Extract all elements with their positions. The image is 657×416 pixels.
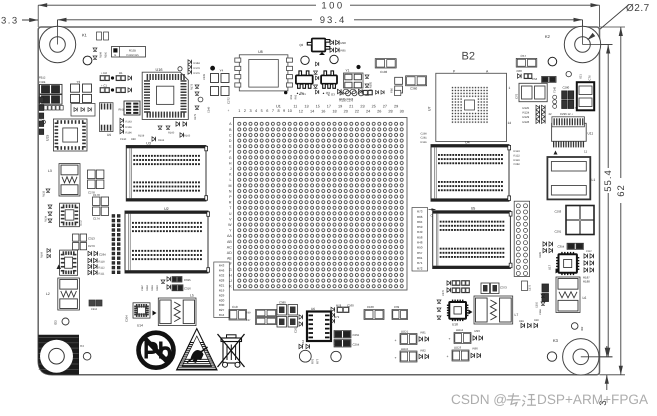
svg-text:R188: R188 bbox=[583, 280, 590, 284]
svg-text:R123: R123 bbox=[514, 150, 521, 153]
svg-text:+: + bbox=[447, 355, 449, 359]
svg-text:C313: C313 bbox=[88, 237, 95, 241]
svg-text:R109: R109 bbox=[41, 251, 44, 258]
svg-text:29: 29 bbox=[394, 104, 398, 108]
svg-text:R44: R44 bbox=[219, 313, 225, 317]
svg-text:R166: R166 bbox=[126, 126, 133, 129]
svg-text:C76: C76 bbox=[588, 75, 592, 81]
svg-text:U15: U15 bbox=[46, 135, 50, 141]
svg-text:R126: R126 bbox=[523, 120, 530, 124]
svg-text:C339: C339 bbox=[203, 73, 206, 80]
svg-text:3: 3 bbox=[249, 109, 251, 113]
svg-text:R133: R133 bbox=[43, 190, 46, 197]
svg-text:R118: R118 bbox=[99, 261, 106, 264]
svg-text:U5: U5 bbox=[471, 207, 476, 211]
svg-text:R48: R48 bbox=[417, 241, 423, 245]
svg-text:12: 12 bbox=[299, 110, 303, 114]
svg-text:R200: R200 bbox=[105, 51, 108, 58]
svg-text:C293: C293 bbox=[555, 210, 562, 214]
svg-text:C360: C360 bbox=[410, 87, 418, 91]
svg-text:L5: L5 bbox=[190, 294, 194, 298]
svg-text:C282: C282 bbox=[514, 163, 521, 166]
svg-text:N: N bbox=[229, 189, 232, 193]
svg-text:DSP+ARM+FPGA: DSP+ARM+FPGA bbox=[537, 392, 649, 407]
svg-text:17: 17 bbox=[327, 104, 331, 108]
svg-text:R: R bbox=[229, 201, 232, 205]
svg-text:H4: H4 bbox=[80, 344, 84, 348]
svg-text:R46: R46 bbox=[219, 269, 225, 273]
svg-text:L7: L7 bbox=[515, 313, 519, 317]
svg-text:R92: R92 bbox=[295, 94, 298, 99]
svg-text:K2: K2 bbox=[545, 34, 551, 39]
svg-text:B2: B2 bbox=[462, 51, 475, 63]
svg-text:R155: R155 bbox=[129, 48, 137, 52]
svg-text:U8: U8 bbox=[258, 50, 263, 54]
svg-text:H: H bbox=[229, 161, 232, 165]
svg-text:2: 2 bbox=[244, 109, 246, 113]
svg-text:ID1: ID1 bbox=[579, 74, 583, 79]
svg-text:C380: C380 bbox=[279, 301, 286, 305]
svg-text:R165: R165 bbox=[184, 135, 191, 138]
svg-text:R72: R72 bbox=[417, 266, 423, 270]
svg-text:+: + bbox=[228, 109, 230, 113]
svg-text:C291: C291 bbox=[555, 230, 562, 234]
svg-text:R92: R92 bbox=[421, 349, 427, 353]
svg-text:L3: L3 bbox=[48, 169, 52, 173]
svg-text:U14: U14 bbox=[137, 324, 143, 328]
svg-text:20: 20 bbox=[344, 110, 348, 114]
svg-text:24: 24 bbox=[366, 110, 370, 114]
svg-text:R95: R95 bbox=[341, 49, 347, 53]
svg-text:M: M bbox=[229, 184, 232, 188]
svg-text:18: 18 bbox=[332, 110, 336, 114]
svg-text:+ C1: + C1 bbox=[101, 84, 107, 88]
svg-text:22: 22 bbox=[355, 110, 359, 114]
svg-text:R124: R124 bbox=[523, 111, 530, 115]
svg-text:8: 8 bbox=[277, 109, 279, 113]
svg-text:19: 19 bbox=[338, 104, 342, 108]
svg-text:C57: C57 bbox=[521, 54, 527, 58]
svg-text:C324: C324 bbox=[39, 81, 46, 84]
svg-text:R71: R71 bbox=[417, 261, 423, 265]
svg-text:23: 23 bbox=[360, 104, 364, 108]
svg-text:C340: C340 bbox=[208, 106, 211, 113]
svg-text:C39: C39 bbox=[394, 305, 400, 309]
svg-text:R162: R162 bbox=[158, 139, 165, 142]
svg-text:U3: U3 bbox=[146, 141, 151, 145]
svg-text:R105 C276: R105 C276 bbox=[340, 100, 354, 103]
svg-text:AC: AC bbox=[227, 245, 232, 249]
svg-text:R98: R98 bbox=[341, 41, 347, 45]
svg-text:10: 10 bbox=[288, 109, 292, 113]
svg-text:D: D bbox=[229, 139, 232, 143]
svg-text:ID3: ID3 bbox=[54, 320, 58, 325]
svg-text:R19: R19 bbox=[219, 288, 225, 292]
svg-text:62: 62 bbox=[616, 184, 627, 197]
svg-text:C100: C100 bbox=[367, 305, 374, 309]
svg-text:F89: F89 bbox=[246, 312, 251, 315]
svg-text:C315: C315 bbox=[184, 278, 191, 282]
svg-text:LED1: LED1 bbox=[401, 330, 408, 334]
svg-text:Q2: Q2 bbox=[299, 43, 303, 47]
svg-text:R196: R196 bbox=[126, 131, 133, 134]
svg-text:R184: R184 bbox=[194, 62, 201, 65]
svg-text:F87: F87 bbox=[246, 319, 251, 322]
svg-text:R66: R66 bbox=[417, 215, 423, 219]
svg-text:R249: R249 bbox=[156, 285, 159, 291]
svg-text:R77: R77 bbox=[316, 358, 320, 364]
svg-text:C290: C290 bbox=[421, 133, 428, 136]
svg-text:R73: R73 bbox=[417, 210, 423, 214]
svg-text:LED4: LED4 bbox=[456, 328, 463, 332]
svg-text:W: W bbox=[228, 223, 232, 227]
svg-text:C255: C255 bbox=[353, 333, 360, 337]
svg-text:C364: C364 bbox=[125, 315, 129, 322]
svg-text:R27: R27 bbox=[219, 308, 225, 312]
svg-text:R129: R129 bbox=[523, 115, 530, 119]
svg-text:K3: K3 bbox=[553, 338, 559, 343]
svg-text:1: 1 bbox=[238, 109, 240, 113]
svg-text:C326C325: C326C325 bbox=[126, 54, 139, 57]
svg-text:C387: C387 bbox=[141, 285, 144, 291]
svg-text:U: U bbox=[229, 212, 232, 216]
svg-text:C174: C174 bbox=[93, 217, 100, 221]
svg-text:R119: R119 bbox=[514, 159, 521, 162]
svg-text:C310: C310 bbox=[120, 138, 127, 141]
svg-text:R189: R189 bbox=[539, 251, 542, 258]
svg-text:R111: R111 bbox=[99, 273, 105, 276]
svg-text:R96: R96 bbox=[473, 347, 479, 351]
svg-text:C297: C297 bbox=[586, 250, 592, 253]
svg-text:R93: R93 bbox=[475, 329, 481, 333]
svg-text:U17: U17 bbox=[548, 264, 552, 270]
svg-text:R20: R20 bbox=[219, 298, 225, 302]
svg-text:G: G bbox=[114, 54, 116, 57]
svg-text:R57: R57 bbox=[417, 251, 423, 255]
svg-text:R89: R89 bbox=[519, 320, 524, 323]
svg-text:C280: C280 bbox=[563, 86, 570, 90]
svg-text:C254: C254 bbox=[353, 343, 360, 347]
svg-text:C170: C170 bbox=[93, 193, 100, 197]
svg-text:R64: R64 bbox=[417, 220, 423, 224]
svg-text:C296 12 +: C296 12 + bbox=[560, 112, 573, 116]
svg-text:RN1: RN1 bbox=[119, 109, 125, 112]
svg-text:R163: R163 bbox=[126, 120, 133, 123]
svg-text:C103: C103 bbox=[380, 70, 388, 74]
svg-text:L6: L6 bbox=[583, 296, 587, 300]
svg-text:U4: U4 bbox=[465, 140, 470, 144]
svg-text:1: 1 bbox=[509, 86, 511, 90]
svg-text:C: C bbox=[229, 133, 232, 137]
svg-text:LED2: LED2 bbox=[401, 347, 408, 351]
svg-text:R49: R49 bbox=[417, 230, 423, 234]
svg-text:R179: R179 bbox=[194, 67, 201, 70]
svg-text:26: 26 bbox=[377, 110, 381, 114]
svg-text:AE: AE bbox=[227, 257, 232, 261]
svg-text:CSDN @: CSDN @ bbox=[451, 392, 507, 407]
svg-text:R91: R91 bbox=[421, 331, 427, 335]
svg-text:U1: U1 bbox=[276, 105, 281, 109]
svg-text:C304: C304 bbox=[91, 308, 98, 311]
svg-text:+: + bbox=[575, 106, 577, 110]
svg-text:16: 16 bbox=[321, 110, 325, 114]
svg-text:25: 25 bbox=[372, 104, 376, 108]
svg-text:R90: R90 bbox=[534, 319, 539, 322]
svg-text:▲ G3: ▲ G3 bbox=[328, 93, 336, 97]
svg-text:K1: K1 bbox=[82, 33, 88, 38]
svg-text:LED3: LED3 bbox=[454, 346, 461, 350]
svg-text:C358: C358 bbox=[539, 309, 542, 315]
svg-text:6: 6 bbox=[266, 109, 268, 113]
svg-text:4: 4 bbox=[255, 109, 257, 113]
svg-text:R94: R94 bbox=[290, 94, 293, 99]
svg-text:C272: C272 bbox=[227, 97, 231, 104]
svg-text:R112: R112 bbox=[99, 267, 106, 270]
svg-text:R29: R29 bbox=[219, 293, 225, 297]
svg-text:L1: L1 bbox=[592, 178, 596, 182]
svg-text:15: 15 bbox=[316, 104, 320, 108]
svg-text:L: L bbox=[230, 178, 232, 182]
svg-text:3.3: 3.3 bbox=[1, 16, 19, 27]
svg-text:21: 21 bbox=[349, 104, 353, 108]
svg-text:Ø2.7: Ø2.7 bbox=[626, 3, 650, 14]
svg-text:AD: AD bbox=[227, 251, 232, 255]
svg-text:R32: R32 bbox=[219, 274, 225, 278]
svg-text:C316: C316 bbox=[184, 287, 191, 291]
svg-text:R61: R61 bbox=[417, 256, 423, 260]
svg-text:U11: U11 bbox=[588, 132, 594, 136]
svg-text:14: 14 bbox=[508, 121, 512, 125]
svg-text:Y1: Y1 bbox=[346, 69, 350, 73]
svg-text:11: 11 bbox=[293, 104, 297, 108]
svg-text:93.4: 93.4 bbox=[320, 15, 347, 26]
svg-text:27: 27 bbox=[383, 104, 387, 108]
svg-text:R1: R1 bbox=[119, 71, 123, 75]
svg-text:C281: C281 bbox=[421, 137, 428, 140]
svg-text:U9: U9 bbox=[107, 133, 111, 137]
svg-text:C10: C10 bbox=[232, 305, 238, 309]
svg-text:7145: 7145 bbox=[553, 86, 557, 93]
svg-text:C354: C354 bbox=[558, 245, 565, 249]
svg-text:+: + bbox=[395, 339, 397, 343]
svg-text:Y4: Y4 bbox=[220, 69, 224, 73]
svg-text:G: G bbox=[229, 156, 232, 160]
svg-text:ID2: ID2 bbox=[580, 326, 584, 331]
svg-text:+: + bbox=[449, 337, 451, 341]
svg-text:28: 28 bbox=[388, 110, 392, 114]
svg-text:R199: R199 bbox=[100, 51, 103, 58]
svg-text:R28: R28 bbox=[219, 278, 225, 282]
svg-text:C56: C56 bbox=[532, 77, 538, 81]
svg-text:U2: U2 bbox=[164, 207, 169, 211]
svg-text:C279: C279 bbox=[88, 244, 95, 248]
svg-text:L2: L2 bbox=[46, 292, 50, 296]
svg-text:R122: R122 bbox=[514, 154, 521, 157]
svg-text:C75: C75 bbox=[515, 93, 519, 99]
svg-text:R43: R43 bbox=[219, 264, 225, 268]
svg-text:C370: C370 bbox=[442, 289, 445, 296]
svg-text:U6: U6 bbox=[311, 307, 315, 311]
svg-text:Y3: Y3 bbox=[77, 80, 81, 84]
svg-text:100: 100 bbox=[321, 1, 344, 12]
svg-text:22: 22 bbox=[549, 112, 553, 116]
svg-text:R30: R30 bbox=[219, 303, 225, 307]
svg-text:C60: C60 bbox=[517, 69, 523, 73]
svg-text:U18: U18 bbox=[452, 323, 458, 327]
svg-text:14: 14 bbox=[310, 110, 314, 114]
svg-text:+ D2: + D2 bbox=[101, 71, 107, 75]
svg-text:R131: R131 bbox=[421, 141, 428, 144]
svg-text:R125: R125 bbox=[523, 106, 530, 110]
svg-text:J: J bbox=[230, 167, 232, 171]
svg-text:30: 30 bbox=[400, 110, 404, 114]
svg-text:9: 9 bbox=[283, 109, 285, 113]
svg-text:▲ G1: ▲ G1 bbox=[299, 92, 307, 96]
svg-text:11: 11 bbox=[584, 150, 587, 154]
svg-text:C294: C294 bbox=[99, 253, 106, 257]
svg-text:R250: R250 bbox=[146, 285, 149, 291]
svg-text:R134: R134 bbox=[45, 215, 48, 222]
svg-text:C373: C373 bbox=[500, 286, 507, 290]
svg-text:R21: R21 bbox=[219, 283, 225, 287]
svg-text:U7: U7 bbox=[428, 107, 432, 111]
svg-text:5: 5 bbox=[261, 109, 263, 113]
svg-text:R176: R176 bbox=[194, 72, 201, 75]
svg-text:7: 7 bbox=[272, 109, 274, 113]
svg-text:R159: R159 bbox=[138, 135, 145, 138]
svg-text:R58: R58 bbox=[417, 235, 423, 239]
svg-text:C355: C355 bbox=[536, 301, 539, 308]
svg-text:U13: U13 bbox=[79, 220, 83, 226]
svg-text:C16: C16 bbox=[301, 339, 305, 345]
svg-text:U16: U16 bbox=[156, 68, 163, 72]
svg-text:AB: AB bbox=[227, 240, 232, 244]
svg-text:R179: R179 bbox=[194, 113, 197, 120]
svg-text:R160: R160 bbox=[168, 132, 175, 135]
svg-text:FB12: FB12 bbox=[39, 76, 46, 79]
svg-text:55.4: 55.4 bbox=[603, 169, 614, 192]
svg-text:13: 13 bbox=[304, 104, 308, 108]
svg-text:AA: AA bbox=[227, 234, 232, 238]
svg-text:+: + bbox=[395, 356, 397, 360]
svg-text:R59: R59 bbox=[417, 225, 423, 229]
svg-text:FB6: FB6 bbox=[391, 88, 394, 93]
svg-text:R248: R248 bbox=[151, 285, 154, 291]
svg-text:R173: R173 bbox=[191, 83, 194, 90]
svg-text:R80: R80 bbox=[131, 138, 136, 141]
svg-text:C372: C372 bbox=[529, 284, 532, 291]
svg-text:R50: R50 bbox=[417, 246, 423, 250]
svg-text:R76: R76 bbox=[311, 358, 315, 364]
